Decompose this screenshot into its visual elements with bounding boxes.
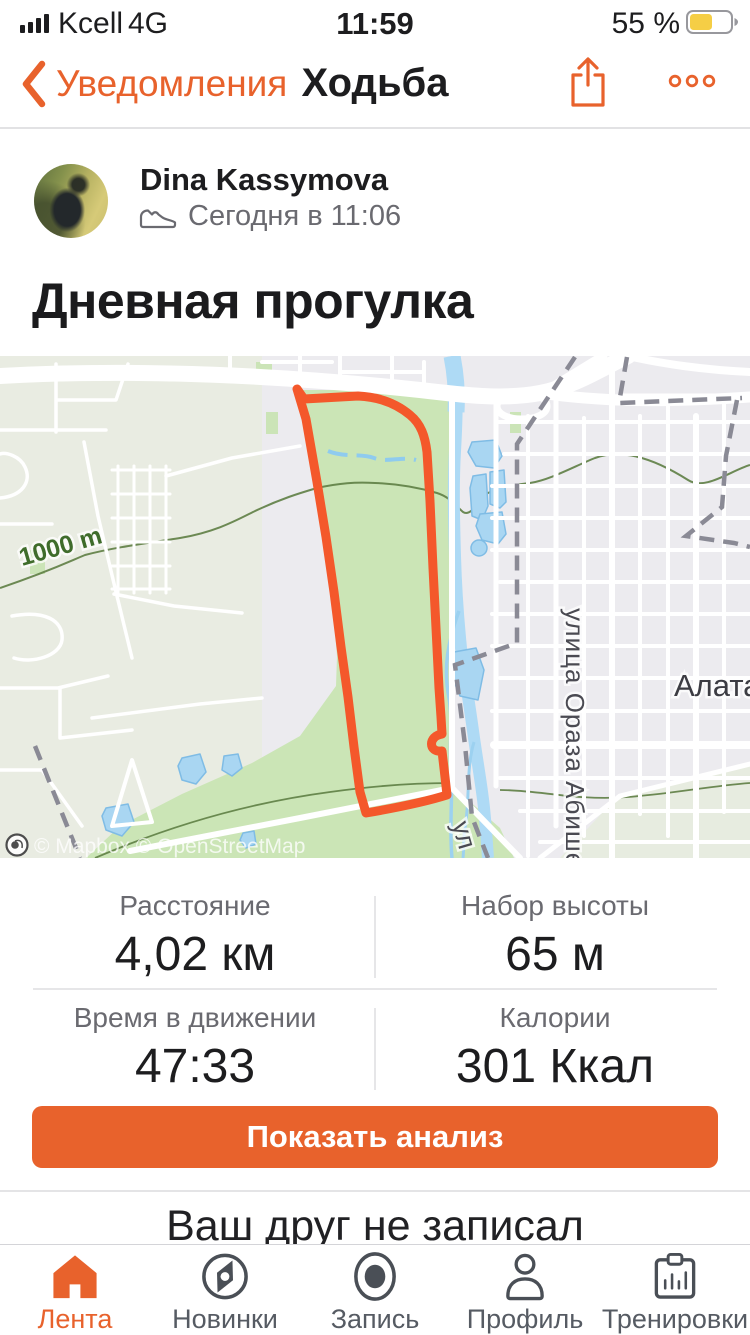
stat-elevation: Набор высоты 65 м [380, 888, 730, 984]
stat-label: Расстояние [20, 888, 370, 924]
stat-moving-time: Время в движении 47:33 [20, 1000, 370, 1096]
record-icon [349, 1251, 401, 1302]
tab-label: Запись [331, 1304, 420, 1335]
tab-training[interactable]: Тренировки [600, 1245, 750, 1335]
activity-date: Сегодня в 11:06 [188, 200, 401, 233]
more-options-button[interactable] [668, 72, 718, 92]
home-icon [49, 1251, 101, 1302]
section-separator [0, 1190, 750, 1192]
tab-bar: Лента Новинки Запись Профиль [0, 1244, 750, 1335]
tab-record[interactable]: Запись [300, 1245, 450, 1335]
map-district-label: Алатауский [674, 668, 750, 703]
map-attribution[interactable]: © Mapbox © OpenStreetMap [34, 835, 305, 858]
tab-label: Тренировки [602, 1304, 748, 1335]
stat-label: Время в движении [20, 1000, 370, 1036]
user-name[interactable]: Dina Kassymova [140, 162, 388, 198]
nav-bar: Уведомления Ходьба [0, 44, 750, 129]
avatar[interactable] [34, 164, 108, 238]
tab-label: Лента [38, 1304, 113, 1335]
stat-value: 301 Ккал [380, 1038, 730, 1096]
tab-whats-new[interactable]: Новинки [150, 1245, 300, 1335]
stat-distance: Расстояние 4,02 км [20, 888, 370, 984]
ellipsis-icon [668, 73, 718, 89]
tab-label: Профиль [467, 1304, 584, 1335]
stat-value: 4,02 км [20, 926, 370, 984]
profile-icon [499, 1251, 551, 1302]
stat-label: Набор высоты [380, 888, 730, 924]
activity-title: Дневная прогулка [32, 272, 473, 330]
tab-label: Новинки [172, 1304, 278, 1335]
stats-divider-vertical [374, 896, 376, 978]
status-bar: Kcell 4G 11:59 55 % [0, 0, 750, 44]
tab-feed[interactable]: Лента [0, 1245, 150, 1335]
stat-value: 47:33 [20, 1038, 370, 1096]
tab-profile[interactable]: Профиль [450, 1245, 600, 1335]
compass-icon [199, 1251, 251, 1302]
map-street-label: улица Ораза Абишева [560, 608, 590, 858]
page-title: Ходьба [0, 61, 750, 106]
battery-icon [686, 10, 740, 34]
stats-divider-vertical [374, 1008, 376, 1090]
training-clipboard-icon [649, 1251, 701, 1302]
show-analysis-button[interactable]: Показать анализ [32, 1106, 718, 1168]
walking-shoe-icon [138, 203, 178, 231]
activity-meta: Сегодня в 11:06 [138, 200, 401, 233]
stat-label: Калории [380, 1000, 730, 1036]
stat-calories: Калории 301 Ккал [380, 1000, 730, 1096]
map-canvas: 1000 m улица Ораза Абишева Алатауский ул… [0, 356, 750, 858]
mapbox-logo[interactable] [7, 835, 28, 856]
share-icon [565, 54, 611, 110]
stats-divider-horizontal [33, 988, 717, 990]
route-map[interactable]: 1000 m улица Ораза Абишева Алатауский ул… [0, 356, 750, 858]
share-button[interactable] [565, 54, 611, 110]
stat-value: 65 м [380, 926, 730, 984]
battery-percent-label: 55 % [612, 7, 680, 41]
